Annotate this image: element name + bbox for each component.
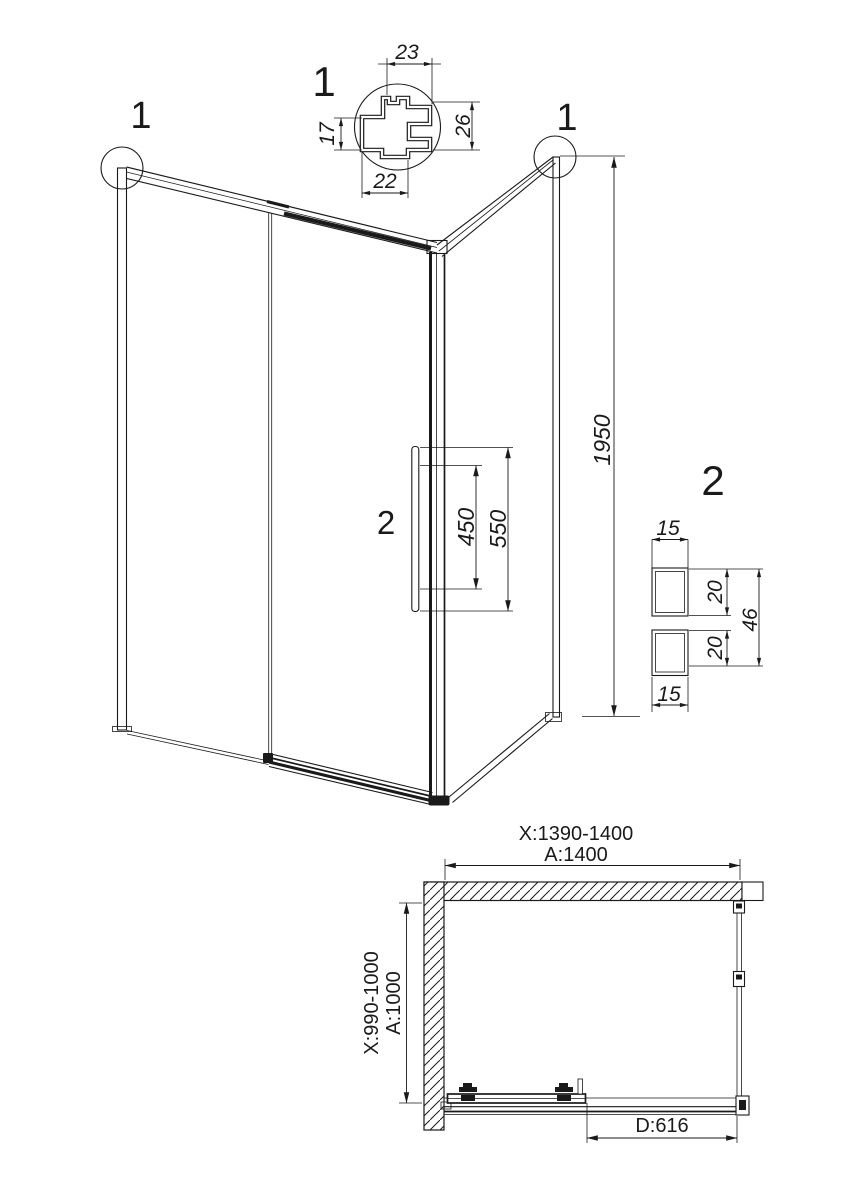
dim-23: 23 — [394, 41, 419, 64]
plan-left-wall — [424, 882, 444, 1130]
dim-46: 46 — [739, 608, 762, 632]
plan-side-glass — [734, 901, 745, 1108]
detail-1-dim-top: 23 — [378, 41, 441, 104]
side-bottom-edge — [449, 714, 553, 803]
shower-enclosure-drawing: 1 23 26 17 22 — [0, 0, 848, 1200]
dim-17: 17 — [316, 121, 339, 146]
dim-450: 450 — [453, 508, 479, 547]
left-wall-post — [113, 168, 132, 732]
plan-door-width: D:616 — [635, 1115, 688, 1137]
detail-2-dim-height-top: 20 — [689, 569, 731, 616]
door-end-pin — [578, 1079, 583, 1094]
callout-right-label: 1 — [556, 97, 577, 139]
back-wall-post — [546, 157, 562, 722]
detail-2-label: 2 — [701, 457, 724, 504]
handle-dimensions: 450 550 — [420, 448, 513, 612]
detail-2-dim-height-bottom: 20 — [689, 631, 763, 667]
detail-2-view: 2 15 20 20 46 — [652, 457, 763, 712]
elevation-view: 1 1 — [101, 95, 640, 806]
plan-depth-range: X:990-1000 — [361, 951, 383, 1054]
door-handle — [412, 447, 419, 612]
handle-section-top — [652, 568, 688, 616]
plan-width-dimension: X:1390-1400 A:1400 — [445, 823, 740, 880]
dim-20-top: 20 — [704, 580, 727, 605]
plan-depth-nominal: A:1000 — [383, 971, 405, 1034]
plan-width-range: X:1390-1400 — [519, 823, 634, 845]
fixed-panel-divider — [263, 213, 273, 764]
detail-2-dim-width-bottom: 15 — [652, 677, 688, 712]
dim-15-bottom: 15 — [657, 683, 681, 706]
dim-26: 26 — [452, 114, 475, 139]
dim-550: 550 — [485, 510, 511, 549]
callout-left-label: 1 — [130, 95, 151, 137]
plan-depth-dimension: X:990-1000 A:1000 — [361, 903, 422, 1103]
dim-22: 22 — [372, 170, 397, 193]
height-dimension: 1950 — [560, 156, 640, 717]
door-hanger-bar — [284, 214, 431, 249]
dim-1950: 1950 — [589, 414, 615, 465]
bottom-track — [269, 754, 433, 806]
plan-view: X:1390-1400 A:1400 X:990-1000 A:1000 D:6… — [361, 823, 763, 1143]
wall-profile-section — [362, 98, 430, 157]
side-top-rail — [437, 157, 556, 257]
technical-drawing-page: 1 23 26 17 22 — [0, 0, 848, 1200]
plan-top-wall — [424, 882, 742, 901]
roller-right — [555, 1083, 573, 1101]
detail-2-dim-total: 46 — [731, 569, 763, 666]
plan-sliding-door — [448, 1079, 586, 1103]
plan-width-nominal: A:1400 — [544, 844, 607, 866]
dim-20-bottom: 20 — [704, 636, 727, 661]
plan-top-wall-cap — [742, 882, 763, 901]
corner-post — [427, 241, 450, 806]
roller-left — [459, 1083, 477, 1101]
handle-section-bottom — [652, 630, 688, 676]
handle-callout-label: 2 — [377, 504, 395, 541]
detail-1-label: 1 — [312, 58, 335, 105]
front-bottom-edge — [127, 731, 269, 765]
detail-1-view: 1 23 26 17 22 — [312, 41, 480, 198]
detail-2-dim-width-top: 15 — [652, 517, 688, 568]
dim-15-top: 15 — [656, 517, 680, 540]
plan-door-dimension: D:616 — [587, 1103, 737, 1143]
